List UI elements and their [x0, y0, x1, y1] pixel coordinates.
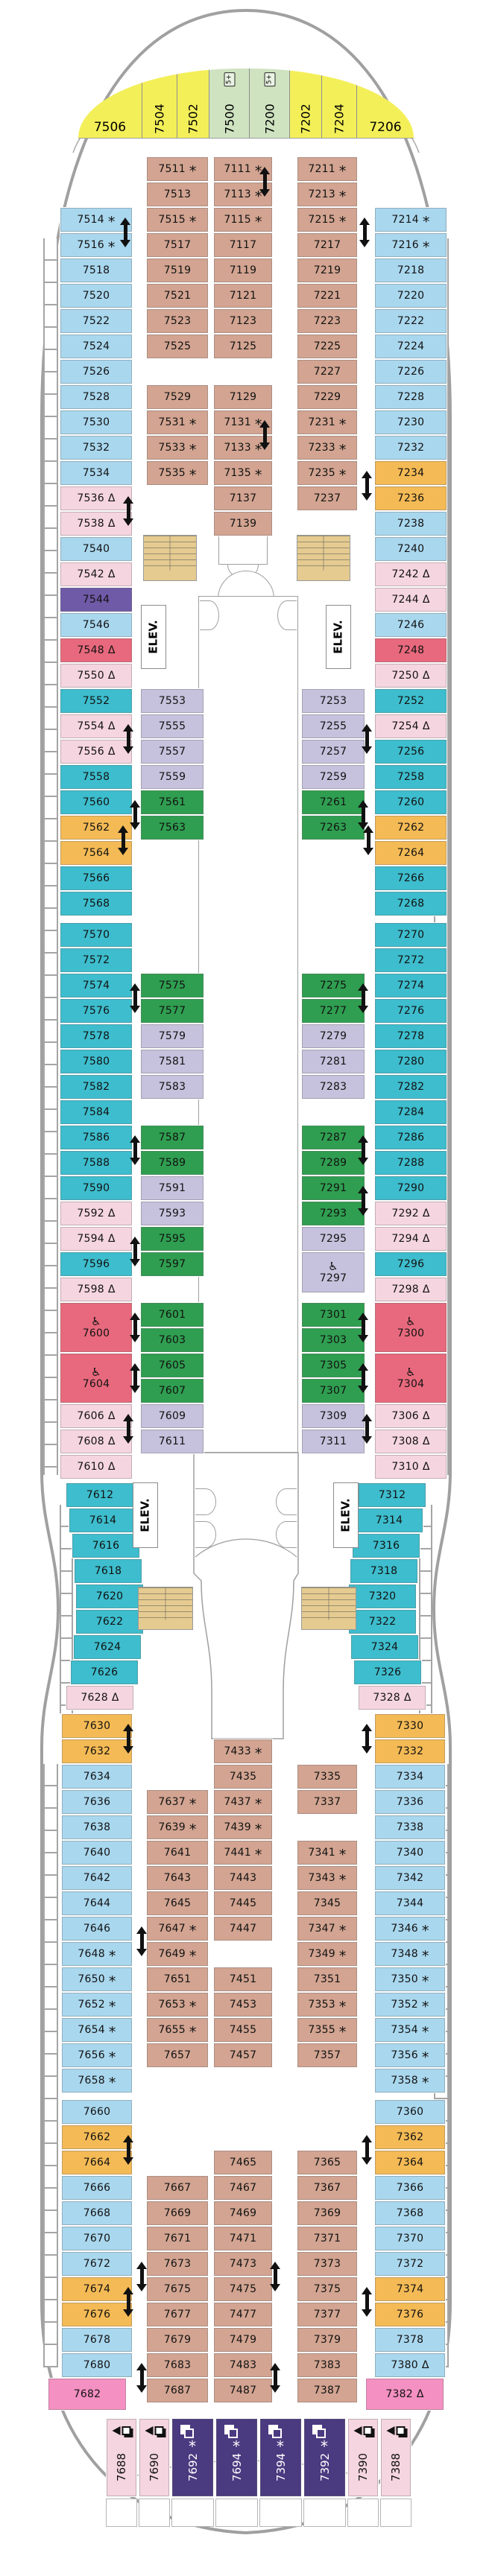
cabin-7640[interactable]: 7640: [61, 1840, 133, 1865]
cabin-7129[interactable]: 7129: [213, 384, 273, 410]
cabin-7362[interactable]: 7362: [374, 2125, 446, 2150]
cabin-7515[interactable]: 7515*: [146, 207, 209, 232]
cabin-7646[interactable]: 7646: [61, 1916, 133, 1941]
cabin-7604[interactable]: ♿7604: [60, 1353, 133, 1403]
cabin-7286[interactable]: 7286: [374, 1125, 447, 1150]
cabin-7479[interactable]: 7479: [213, 2327, 273, 2353]
cabin-7338[interactable]: 7338: [374, 1815, 446, 1840]
cabin-7561[interactable]: 7561: [140, 790, 204, 815]
cabin-7502[interactable]: 7502: [177, 69, 209, 138]
cabin-7638[interactable]: 7638: [61, 1815, 133, 1840]
cabin-7229[interactable]: 7229: [297, 384, 358, 410]
cabin-7376[interactable]: 7376: [374, 2302, 446, 2327]
cabin-7687[interactable]: 7687: [146, 2378, 209, 2403]
cabin-7467[interactable]: 7467: [213, 2175, 273, 2201]
cabin-7238[interactable]: 7238: [374, 511, 447, 536]
cabin-7305[interactable]: 7305: [301, 1353, 365, 1378]
cabin-7538[interactable]: 7538Δ: [60, 511, 133, 536]
cabin-7297[interactable]: ♿7297: [301, 1251, 365, 1293]
cabin-7300[interactable]: ♿7300: [374, 1302, 447, 1353]
cabin-7288[interactable]: 7288: [374, 1150, 447, 1176]
cabin-7600[interactable]: ♿7600: [60, 1302, 133, 1353]
cabin-7248[interactable]: 7248: [374, 638, 447, 663]
cabin-7228[interactable]: 7228: [374, 384, 447, 410]
cabin-7575[interactable]: 7575: [140, 973, 204, 998]
cabin-7316[interactable]: 7316: [352, 1533, 420, 1558]
cabin-7678[interactable]: 7678: [61, 2327, 133, 2353]
cabin-7574[interactable]: 7574: [60, 973, 133, 998]
cabin-7353[interactable]: 7353*: [297, 1992, 358, 2017]
cabin-7581[interactable]: 7581: [140, 1049, 204, 1074]
cabin-7532[interactable]: 7532: [60, 435, 133, 460]
cabin-7220[interactable]: 7220: [374, 283, 447, 308]
cabin-7672[interactable]: 7672: [61, 2251, 133, 2277]
cabin-7648[interactable]: 7648*: [61, 1941, 133, 1967]
cabin-7455[interactable]: 7455: [213, 2017, 273, 2043]
cabin-7352[interactable]: 7352*: [374, 1992, 446, 2017]
cabin-7473[interactable]: 7473: [213, 2251, 273, 2277]
cabin-7570[interactable]: 7570: [60, 922, 133, 948]
cabin-7224[interactable]: 7224: [374, 334, 447, 359]
cabin-7443[interactable]: 7443: [213, 1865, 273, 1891]
cabin-7349[interactable]: 7349*: [297, 1941, 358, 1967]
cabin-7119[interactable]: 7119: [213, 258, 273, 283]
cabin-7371[interactable]: 7371: [297, 2226, 358, 2251]
cabin-7211[interactable]: 7211*: [297, 156, 358, 182]
cabin-7667[interactable]: 7667: [146, 2175, 209, 2201]
cabin-7296[interactable]: 7296: [374, 1251, 447, 1277]
cabin-7607[interactable]: 7607: [140, 1378, 204, 1403]
cabin-7676[interactable]: 7676: [61, 2302, 133, 2327]
cabin-7348[interactable]: 7348*: [374, 1941, 446, 1967]
cabin-7609[interactable]: 7609: [140, 1403, 204, 1429]
cabin-7121[interactable]: 7121: [213, 283, 273, 308]
cabin-7483[interactable]: 7483: [213, 2353, 273, 2378]
cabin-7558[interactable]: 7558: [60, 764, 133, 790]
cabin-7123[interactable]: 7123: [213, 308, 273, 334]
cabin-7578[interactable]: 7578: [60, 1024, 133, 1049]
cabin-7437[interactable]: 7437*: [213, 1789, 273, 1815]
cabin-7586[interactable]: 7586: [60, 1125, 133, 1150]
cabin-7674[interactable]: 7674: [61, 2277, 133, 2302]
cabin-7645[interactable]: 7645: [146, 1891, 209, 1916]
cabin-7582[interactable]: 7582: [60, 1074, 133, 1100]
cabin-7441[interactable]: 7441*: [213, 1840, 273, 1865]
cabin-7568[interactable]: 7568: [60, 891, 133, 916]
cabin-7392[interactable]: *7392: [303, 2418, 346, 2497]
cabin-7227[interactable]: 7227: [297, 359, 358, 384]
cabin-7544[interactable]: 7544: [60, 587, 133, 612]
cabin-7233[interactable]: 7233*: [297, 435, 358, 460]
cabin-7344[interactable]: 7344: [374, 1891, 446, 1916]
cabin-7553[interactable]: 7553: [140, 688, 204, 714]
cabin-7366[interactable]: 7366: [374, 2175, 446, 2201]
cabin-7307[interactable]: 7307: [301, 1378, 365, 1403]
cabin-7383[interactable]: 7383: [297, 2353, 358, 2378]
cabin-7469[interactable]: 7469: [213, 2201, 273, 2226]
cabin-7688[interactable]: 7688: [106, 2418, 137, 2497]
cabin-7270[interactable]: 7270: [374, 922, 447, 948]
cabin-7435[interactable]: 7435: [213, 1764, 273, 1789]
cabin-7634[interactable]: 7634: [61, 1764, 133, 1789]
cabin-7559[interactable]: 7559: [140, 764, 204, 790]
cabin-7577[interactable]: 7577: [140, 998, 204, 1024]
cabin-7242[interactable]: 7242Δ: [374, 562, 447, 587]
cabin-7365[interactable]: 7365: [297, 2150, 358, 2175]
cabin-7608[interactable]: 7608Δ: [60, 1429, 133, 1454]
cabin-7215[interactable]: 7215*: [297, 207, 358, 232]
cabin-7550[interactable]: 7550Δ: [60, 663, 133, 688]
cabin-7336[interactable]: 7336: [374, 1789, 446, 1815]
cabin-7639[interactable]: 7639*: [146, 1815, 209, 1840]
cabin-7356[interactable]: 7356*: [374, 2043, 446, 2068]
cabin-7279[interactable]: 7279: [301, 1024, 365, 1049]
cabin-7603[interactable]: 7603: [140, 1327, 204, 1353]
cabin-7268[interactable]: 7268: [374, 891, 447, 916]
cabin-7642[interactable]: 7642: [61, 1865, 133, 1891]
cabin-7230[interactable]: 7230: [374, 410, 447, 435]
cabin-7218[interactable]: 7218: [374, 258, 447, 283]
cabin-7373[interactable]: 7373: [297, 2251, 358, 2277]
cabin-7117[interactable]: 7117: [213, 232, 273, 258]
cabin-7531[interactable]: 7531*: [146, 410, 209, 435]
cabin-7354[interactable]: 7354*: [374, 2017, 446, 2043]
cabin-7301[interactable]: 7301: [301, 1302, 365, 1327]
cabin-7614[interactable]: 7614: [69, 1508, 137, 1533]
cabin-7308[interactable]: 7308Δ: [374, 1429, 447, 1454]
cabin-7358[interactable]: 7358*: [374, 2068, 446, 2093]
cabin-7658[interactable]: 7658*: [61, 2068, 133, 2093]
cabin-7216[interactable]: 7216*: [374, 232, 447, 258]
cabin-7263[interactable]: 7263: [301, 815, 365, 840]
cabin-7554[interactable]: 7554Δ: [60, 714, 133, 739]
cabin-7281[interactable]: 7281: [301, 1049, 365, 1074]
cabin-7593[interactable]: 7593: [140, 1201, 204, 1226]
cabin-7630[interactable]: 7630: [61, 1713, 133, 1739]
cabin-7370[interactable]: 7370: [374, 2226, 446, 2251]
cabin-7692[interactable]: *7692: [171, 2418, 214, 2497]
cabin-7636[interactable]: 7636: [61, 1789, 133, 1815]
cabin-7528[interactable]: 7528: [60, 384, 133, 410]
cabin-7261[interactable]: 7261: [301, 790, 365, 815]
cabin-7626[interactable]: 7626: [70, 1660, 139, 1685]
cabin-7276[interactable]: 7276: [374, 998, 447, 1024]
cabin-7368[interactable]: 7368: [374, 2201, 446, 2226]
cabin-7560[interactable]: 7560: [60, 790, 133, 815]
cabin-7524[interactable]: 7524: [60, 334, 133, 359]
cabin-7295[interactable]: 7295: [301, 1226, 365, 1251]
cabin-7680[interactable]: 7680: [61, 2353, 133, 2378]
cabin-7595[interactable]: 7595: [140, 1226, 204, 1251]
cabin-7326[interactable]: 7326: [353, 1660, 422, 1685]
cabin-7477[interactable]: 7477: [213, 2302, 273, 2327]
cabin-7590[interactable]: 7590: [60, 1176, 133, 1201]
cabin-7650[interactable]: 7650*: [61, 1967, 133, 1992]
cabin-7204[interactable]: 7204: [321, 69, 356, 138]
cabin-7304[interactable]: ♿7304: [374, 1353, 447, 1403]
cabin-7540[interactable]: 7540: [60, 536, 133, 562]
cabin-7282[interactable]: 7282: [374, 1074, 447, 1100]
cabin-7306[interactable]: 7306Δ: [374, 1403, 447, 1429]
cabin-7644[interactable]: 7644: [61, 1891, 133, 1916]
cabin-7298[interactable]: 7298Δ: [374, 1277, 447, 1302]
cabin-7293[interactable]: 7293: [301, 1201, 365, 1226]
cabin-7605[interactable]: 7605: [140, 1353, 204, 1378]
cabin-7252[interactable]: 7252: [374, 688, 447, 714]
cabin-7583[interactable]: 7583: [140, 1074, 204, 1100]
cabin-7655[interactable]: 7655*: [146, 2017, 209, 2043]
cabin-7312[interactable]: 7312: [358, 1482, 426, 1508]
cabin-7256[interactable]: 7256: [374, 739, 447, 764]
cabin-7221[interactable]: 7221: [297, 283, 358, 308]
cabin-7584[interactable]: 7584: [60, 1100, 133, 1125]
cabin-7360[interactable]: 7360: [374, 2099, 446, 2125]
cabin-7115[interactable]: 7115*: [213, 207, 273, 232]
cabin-7690[interactable]: 7690: [139, 2418, 170, 2497]
cabin-7612[interactable]: 7612: [66, 1482, 134, 1508]
cabin-7656[interactable]: 7656*: [61, 2043, 133, 2068]
cabin-7682[interactable]: 7682: [48, 2378, 127, 2411]
cabin-7683[interactable]: 7683: [146, 2353, 209, 2378]
cabin-7566[interactable]: 7566: [60, 866, 133, 891]
cabin-7250[interactable]: 7250Δ: [374, 663, 447, 688]
cabin-7618[interactable]: 7618: [74, 1558, 142, 1584]
cabin-7591[interactable]: 7591: [140, 1176, 204, 1201]
cabin-7219[interactable]: 7219: [297, 258, 358, 283]
cabin-7278[interactable]: 7278: [374, 1024, 447, 1049]
cabin-7535[interactable]: 7535*: [146, 460, 209, 486]
cabin-7377[interactable]: 7377: [297, 2302, 358, 2327]
cabin-7342[interactable]: 7342: [374, 1865, 446, 1891]
cabin-7375[interactable]: 7375: [297, 2277, 358, 2302]
cabin-7526[interactable]: 7526: [60, 359, 133, 384]
cabin-7601[interactable]: 7601: [140, 1302, 204, 1327]
cabin-7647[interactable]: 7647*: [146, 1916, 209, 1941]
cabin-7664[interactable]: 7664: [61, 2150, 133, 2175]
cabin-7357[interactable]: 7357: [297, 2043, 358, 2068]
cabin-7506[interactable]: 7506: [78, 69, 142, 138]
cabin-7135[interactable]: 7135*: [213, 460, 273, 486]
cabin-7451[interactable]: 7451: [213, 1967, 273, 1992]
cabin-7255[interactable]: 7255: [301, 714, 365, 739]
cabin-7669[interactable]: 7669: [146, 2201, 209, 2226]
cabin-7592[interactable]: 7592Δ: [60, 1201, 133, 1226]
cabin-7244[interactable]: 7244Δ: [374, 587, 447, 612]
cabin-7257[interactable]: 7257: [301, 739, 365, 764]
cabin-7660[interactable]: 7660: [61, 2099, 133, 2125]
cabin-7589[interactable]: 7589: [140, 1150, 204, 1176]
cabin-7318[interactable]: 7318: [350, 1558, 418, 1584]
cabin-7137[interactable]: 7137: [213, 486, 273, 511]
cabin-7552[interactable]: 7552: [60, 688, 133, 714]
cabin-7504[interactable]: 7504: [142, 69, 177, 138]
cabin-7341[interactable]: 7341*: [297, 1840, 358, 1865]
cabin-7572[interactable]: 7572: [60, 948, 133, 973]
cabin-7606[interactable]: 7606Δ: [60, 1403, 133, 1429]
cabin-7290[interactable]: 7290: [374, 1176, 447, 1201]
cabin-7237[interactable]: 7237: [297, 486, 358, 511]
cabin-7523[interactable]: 7523: [146, 308, 209, 334]
cabin-7234[interactable]: 7234: [374, 460, 447, 486]
cabin-7294[interactable]: 7294Δ: [374, 1226, 447, 1251]
cabin-7246[interactable]: 7246: [374, 612, 447, 638]
cabin-7277[interactable]: 7277: [301, 998, 365, 1024]
cabin-7628[interactable]: 7628Δ: [66, 1685, 134, 1710]
cabin-7378[interactable]: 7378: [374, 2327, 446, 2353]
cabin-7517[interactable]: 7517: [146, 232, 209, 258]
cabin-7525[interactable]: 7525: [146, 334, 209, 359]
cabin-7530[interactable]: 7530: [60, 410, 133, 435]
cabin-7225[interactable]: 7225: [297, 334, 358, 359]
cabin-7651[interactable]: 7651: [146, 1967, 209, 1992]
cabin-7533[interactable]: 7533*: [146, 435, 209, 460]
cabin-7594[interactable]: 7594Δ: [60, 1226, 133, 1251]
cabin-7390[interactable]: 7390: [347, 2418, 379, 2497]
cabin-7611[interactable]: 7611: [140, 1429, 204, 1454]
cabin-7598[interactable]: 7598Δ: [60, 1277, 133, 1302]
cabin-7369[interactable]: 7369: [297, 2201, 358, 2226]
cabin-7453[interactable]: 7453: [213, 1992, 273, 2017]
cabin-7670[interactable]: 7670: [61, 2226, 133, 2251]
cabin-7139[interactable]: 7139: [213, 511, 273, 536]
cabin-7668[interactable]: 7668: [61, 2201, 133, 2226]
cabin-7262[interactable]: 7262: [374, 815, 447, 840]
cabin-7314[interactable]: 7314: [355, 1508, 423, 1533]
cabin-7232[interactable]: 7232: [374, 435, 447, 460]
cabin-7291[interactable]: 7291: [301, 1176, 365, 1201]
cabin-7556[interactable]: 7556Δ: [60, 739, 133, 764]
cabin-7355[interactable]: 7355*: [297, 2017, 358, 2043]
cabin-7320[interactable]: 7320: [348, 1584, 417, 1609]
cabin-7433[interactable]: 7433*: [213, 1739, 273, 1764]
cabin-7666[interactable]: 7666: [61, 2175, 133, 2201]
cabin-7457[interactable]: 7457: [213, 2043, 273, 2068]
cabin-7382[interactable]: 7382Δ: [365, 2378, 444, 2411]
cabin-7346[interactable]: 7346*: [374, 1916, 446, 1941]
cabin-7637[interactable]: 7637*: [146, 1789, 209, 1815]
cabin-7643[interactable]: 7643: [146, 1865, 209, 1891]
cabin-7587[interactable]: 7587: [140, 1125, 204, 1150]
cabin-7231[interactable]: 7231*: [297, 410, 358, 435]
cabin-7394[interactable]: *7394: [259, 2418, 302, 2497]
cabin-7283[interactable]: 7283: [301, 1074, 365, 1100]
cabin-7518[interactable]: 7518: [60, 258, 133, 283]
cabin-7367[interactable]: 7367: [297, 2175, 358, 2201]
cabin-7324[interactable]: 7324: [350, 1634, 419, 1660]
cabin-7200[interactable]: 72005+: [249, 69, 289, 138]
cabin-7641[interactable]: 7641: [146, 1840, 209, 1865]
cabin-7311[interactable]: 7311: [301, 1429, 365, 1454]
cabin-7563[interactable]: 7563: [140, 815, 204, 840]
cabin-7652[interactable]: 7652*: [61, 1992, 133, 2017]
cabin-7334[interactable]: 7334: [374, 1764, 446, 1789]
cabin-7223[interactable]: 7223: [297, 308, 358, 334]
cabin-7596[interactable]: 7596: [60, 1251, 133, 1277]
cabin-7649[interactable]: 7649*: [146, 1941, 209, 1967]
cabin-7662[interactable]: 7662: [61, 2125, 133, 2150]
cabin-7465[interactable]: 7465: [213, 2150, 273, 2175]
cabin-7657[interactable]: 7657: [146, 2043, 209, 2068]
cabin-7597[interactable]: 7597: [140, 1251, 204, 1277]
cabin-7546[interactable]: 7546: [60, 612, 133, 638]
cabin-7620[interactable]: 7620: [75, 1584, 144, 1609]
cabin-7347[interactable]: 7347*: [297, 1916, 358, 1941]
cabin-7548[interactable]: 7548Δ: [60, 638, 133, 663]
cabin-7387[interactable]: 7387: [297, 2378, 358, 2403]
cabin-7343[interactable]: 7343*: [297, 1865, 358, 1891]
cabin-7328[interactable]: 7328Δ: [358, 1685, 426, 1710]
cabin-7292[interactable]: 7292Δ: [374, 1201, 447, 1226]
cabin-7445[interactable]: 7445: [213, 1891, 273, 1916]
cabin-7350[interactable]: 7350*: [374, 1967, 446, 1992]
cabin-7264[interactable]: 7264: [374, 840, 447, 866]
cabin-7125[interactable]: 7125: [213, 334, 273, 359]
cabin-7557[interactable]: 7557: [140, 739, 204, 764]
cabin-7222[interactable]: 7222: [374, 308, 447, 334]
cabin-7337[interactable]: 7337: [297, 1789, 358, 1815]
cabin-7274[interactable]: 7274: [374, 973, 447, 998]
cabin-7616[interactable]: 7616: [72, 1533, 140, 1558]
cabin-7447[interactable]: 7447: [213, 1916, 273, 1941]
cabin-7475[interactable]: 7475: [213, 2277, 273, 2302]
cabin-7694[interactable]: *7694: [215, 2418, 258, 2497]
cabin-7521[interactable]: 7521: [146, 283, 209, 308]
cabin-7310[interactable]: 7310Δ: [374, 1454, 447, 1479]
cabin-7202[interactable]: 7202: [289, 69, 321, 138]
cabin-7513[interactable]: 7513: [146, 182, 209, 207]
cabin-7671[interactable]: 7671: [146, 2226, 209, 2251]
cabin-7213[interactable]: 7213*: [297, 182, 358, 207]
cabin-7439[interactable]: 7439*: [213, 1815, 273, 1840]
cabin-7542[interactable]: 7542Δ: [60, 562, 133, 587]
cabin-7579[interactable]: 7579: [140, 1024, 204, 1049]
cabin-7555[interactable]: 7555: [140, 714, 204, 739]
cabin-7206[interactable]: 7206: [356, 69, 414, 138]
cabin-7345[interactable]: 7345: [297, 1891, 358, 1916]
cabin-7236[interactable]: 7236: [374, 486, 447, 511]
cabin-7258[interactable]: 7258: [374, 764, 447, 790]
cabin-7519[interactable]: 7519: [146, 258, 209, 283]
cabin-7380[interactable]: 7380Δ: [374, 2353, 446, 2378]
cabin-7388[interactable]: 7388: [380, 2418, 411, 2497]
cabin-7226[interactable]: 7226: [374, 359, 447, 384]
cabin-7653[interactable]: 7653*: [146, 1992, 209, 2017]
cabin-7217[interactable]: 7217: [297, 232, 358, 258]
cabin-7266[interactable]: 7266: [374, 866, 447, 891]
cabin-7610[interactable]: 7610Δ: [60, 1454, 133, 1479]
cabin-7240[interactable]: 7240: [374, 536, 447, 562]
cabin-7287[interactable]: 7287: [301, 1125, 365, 1150]
cabin-7536[interactable]: 7536Δ: [60, 486, 133, 511]
cabin-7677[interactable]: 7677: [146, 2302, 209, 2327]
cabin-7335[interactable]: 7335: [297, 1764, 358, 1789]
cabin-7576[interactable]: 7576: [60, 998, 133, 1024]
cabin-7289[interactable]: 7289: [301, 1150, 365, 1176]
cabin-7511[interactable]: 7511*: [146, 156, 209, 182]
cabin-7235[interactable]: 7235*: [297, 460, 358, 486]
cabin-7259[interactable]: 7259: [301, 764, 365, 790]
cabin-7372[interactable]: 7372: [374, 2251, 446, 2277]
cabin-7673[interactable]: 7673: [146, 2251, 209, 2277]
cabin-7275[interactable]: 7275: [301, 973, 365, 998]
cabin-7309[interactable]: 7309: [301, 1403, 365, 1429]
cabin-7654[interactable]: 7654*: [61, 2017, 133, 2043]
cabin-7351[interactable]: 7351: [297, 1967, 358, 1992]
cabin-7632[interactable]: 7632: [61, 1739, 133, 1764]
cabin-7520[interactable]: 7520: [60, 283, 133, 308]
cabin-7522[interactable]: 7522: [60, 308, 133, 334]
cabin-7675[interactable]: 7675: [146, 2277, 209, 2302]
